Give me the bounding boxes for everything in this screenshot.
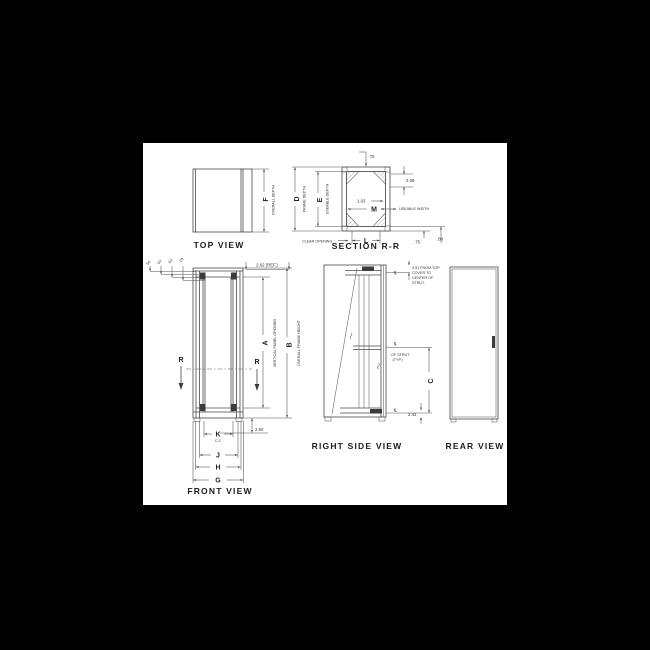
dim-letter-g: G bbox=[215, 478, 221, 485]
dim-note-panel-opening: VERTICAL PANEL OPENING bbox=[273, 319, 277, 368]
dim-letter-f: F bbox=[263, 197, 270, 202]
dim-note-frame-height: OVERALL FRAME HEIGHT bbox=[297, 319, 301, 366]
section-letter-r-right: R bbox=[254, 359, 259, 366]
dim-letter-d: D bbox=[294, 196, 301, 201]
dim-letter-c: C bbox=[428, 378, 435, 383]
label-useable-width: USEABLE WIDTH bbox=[399, 207, 429, 211]
dim-note-overall-depth: OVERALL DEPTH bbox=[271, 184, 275, 215]
dim-value-241: 2.41 bbox=[408, 412, 417, 417]
rear-door-handle bbox=[492, 336, 495, 348]
dim-value-ref: 2.62 (REF.) bbox=[256, 263, 278, 268]
section-view-title: SECTION R-R bbox=[332, 241, 400, 251]
note-typ: (TYP.) bbox=[393, 358, 403, 362]
dim-letter-m: M bbox=[371, 207, 377, 214]
right-view-title: RIGHT SIDE VIEW bbox=[312, 441, 403, 451]
dim-value-bot75: .75 bbox=[414, 240, 421, 245]
drawing-canvas: F OVERALL DEPTH TOP VIEW .75 bbox=[0, 0, 650, 650]
dim-note-cc: C-C bbox=[215, 439, 222, 443]
label-clear-opening: CLEAR OPENING bbox=[302, 240, 332, 244]
dim-letter-a: A bbox=[263, 340, 270, 345]
note-of-strut: OF STRUT bbox=[391, 353, 410, 357]
rear-view-title: REAR VIEW bbox=[446, 441, 505, 451]
dim-value-103: 1.03 bbox=[357, 199, 366, 204]
dim-value-208: 2.08 bbox=[406, 178, 415, 183]
section-letter-r-left: R bbox=[178, 357, 183, 364]
front-view-title: FRONT VIEW bbox=[187, 486, 252, 496]
note-351-line1: 3.51 FROM TOP bbox=[412, 266, 440, 270]
top-view-title: TOP VIEW bbox=[194, 240, 245, 250]
centerline-symbol-mid: ℄ bbox=[393, 342, 397, 347]
dim-note-frame-depth: FRAME DEPTH bbox=[302, 185, 306, 212]
centerline-symbol-bottom: ℄ bbox=[393, 408, 397, 413]
dim-letter-h: H bbox=[215, 465, 220, 472]
dim-letter-b: B bbox=[287, 342, 294, 347]
dim-value-250: 2.50 bbox=[255, 427, 264, 432]
dim-letter-j: J bbox=[216, 453, 220, 460]
dim-note-useable-depth: USEABLE DEPTH bbox=[325, 183, 329, 214]
dim-letter-k: K bbox=[215, 432, 220, 439]
dim-value-bot88: .88 bbox=[437, 237, 444, 242]
scanned-drawing-page: { "colors": { "background": "#000000", "… bbox=[0, 0, 650, 650]
dim-value-top75: .75 bbox=[369, 154, 376, 159]
centerline-symbol-top: ℄ bbox=[393, 271, 397, 276]
note-351-line2: COVER TO bbox=[412, 271, 431, 275]
dim-letter-e: E bbox=[317, 197, 324, 202]
note-351-line3: CENTER OF bbox=[412, 276, 434, 280]
note-351-line4: STRUT. bbox=[412, 281, 425, 285]
